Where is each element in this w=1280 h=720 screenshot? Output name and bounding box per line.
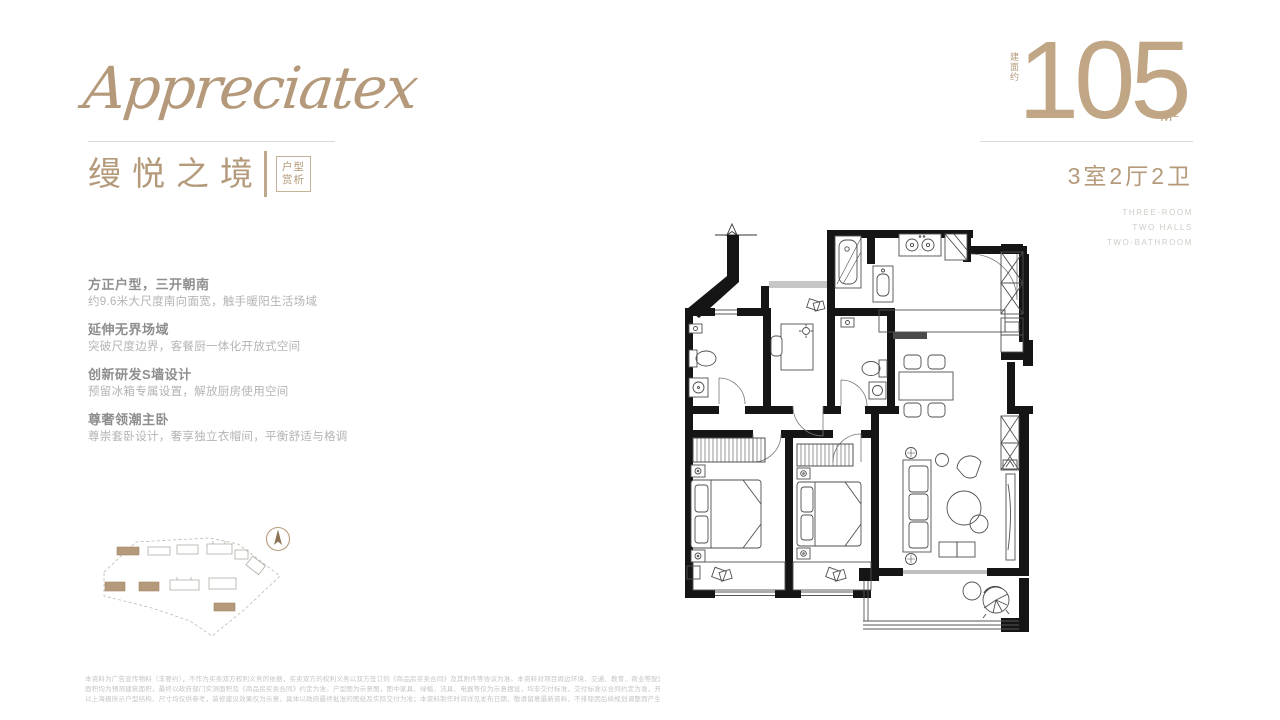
tv-console <box>1003 460 1017 560</box>
title-tag-box: 户型 赏析 <box>276 156 311 192</box>
title-tag-line2: 赏析 <box>282 174 305 187</box>
stove <box>899 234 941 256</box>
feature-item: 方正户型，三开朝南 约9.6米大尺度南向面宽，触手暖阳生活场域 <box>88 277 428 309</box>
layout-en-line2: TWO HALLS <box>1107 220 1193 235</box>
layout-summary-en: THREE-ROOM TWO HALLS TWO-BATHROOM <box>1107 205 1193 250</box>
area-unit: M² <box>1160 108 1180 125</box>
page-title: 缦悦之境 <box>88 151 264 197</box>
disclaimer-line2: 面积均为预测建筑面积，最终以政府部门实测面积及《商品房买卖合同》约定为准。户型图… <box>85 685 660 695</box>
feature-title: 延伸无界场域 <box>88 322 428 338</box>
legal-disclaimer: 本资料为广告宣传物料（非要约），不作为买卖双方权利义务的依据，买卖双方的权利义务… <box>85 675 660 705</box>
balcony-door-band <box>903 570 987 574</box>
right-divider <box>980 141 1193 142</box>
feature-desc: 突破尺度边界，客餐厨一体化开放式空间 <box>88 340 428 354</box>
layout-en-line1: THREE-ROOM <box>1107 205 1193 220</box>
north-arrow-icon <box>715 224 757 235</box>
layout-en-line3: TWO-BATHROOM <box>1107 235 1193 250</box>
sofa <box>903 448 931 565</box>
layout-summary-cn: 3室2厅2卫 <box>1068 157 1193 191</box>
site-plan <box>92 518 306 650</box>
bay-window-band <box>769 281 827 288</box>
coffee-table <box>939 542 975 557</box>
feature-list: 方正户型，三开朝南 约9.6米大尺度南向面宽，触手暖阳生活场域 延伸无界场域 突… <box>88 277 428 457</box>
s-wall-segment <box>893 332 927 339</box>
armchair <box>936 454 982 479</box>
windows <box>715 310 1019 629</box>
study-desk <box>771 324 813 370</box>
bedroom1-wardrobe <box>693 438 765 462</box>
floor-plan <box>675 222 1080 642</box>
compass-icon <box>267 528 290 551</box>
feature-desc: 尊崇套卧设计，奢享独立衣帽间，平衡舒适与格调 <box>88 430 428 444</box>
feature-desc: 预留冰箱专属设置，解放厨房使用空间 <box>88 385 428 399</box>
feature-title: 创新研发S墙设计 <box>88 367 428 383</box>
feature-item: 延伸无界场域 突破尺度边界，客餐厨一体化开放式空间 <box>88 322 428 354</box>
dining-set <box>899 355 953 417</box>
disclaimer-line3: 以上海报所示户型结构、尺寸均仅供参考，装修建议效果仅为示意，具体以政府最终批准的… <box>85 695 660 705</box>
living-rug <box>947 491 988 533</box>
feature-title: 方正户型，三开朝南 <box>88 277 428 293</box>
balcony-furniture <box>963 582 1009 618</box>
bedroom2-wardrobe <box>797 444 853 466</box>
kitchen-corner-cabinet <box>945 234 967 260</box>
disclaimer-line1: 本资料为广告宣传物料（非要约），不作为买卖双方权利义务的依据，买卖双方的权利义务… <box>85 675 660 685</box>
feature-title: 尊奢领潮主卧 <box>88 412 428 428</box>
title-tag-line1: 户型 <box>282 161 305 174</box>
fridge-cabinet <box>1001 416 1019 470</box>
feature-item: 尊奢领潮主卧 尊崇套卧设计，奢享独立衣帽间，平衡舒适与格调 <box>88 412 428 444</box>
kitchen-counter <box>879 310 1005 332</box>
feature-desc: 约9.6米大尺度南向面宽，触手暖阳生活场域 <box>88 295 428 309</box>
feature-item: 创新研发S墙设计 预留冰箱专属设置，解放厨房使用空间 <box>88 367 428 399</box>
left-divider <box>88 141 335 142</box>
bathtub <box>835 236 861 288</box>
bathroom2-fixtures <box>841 318 887 399</box>
bay-window-sills <box>687 562 871 590</box>
site-buildings <box>148 541 265 590</box>
decor-origami <box>807 299 825 311</box>
kitchen-sink <box>873 266 893 302</box>
bedroom1-bed <box>691 465 761 562</box>
brand-logo: Appreciatex <box>79 38 410 138</box>
title-separator-bar <box>264 151 267 197</box>
bathroom1-fixtures <box>689 324 716 397</box>
page-title-row: 缦悦之境 户型 赏析 <box>88 151 311 197</box>
bedroom2-bed <box>797 468 861 559</box>
